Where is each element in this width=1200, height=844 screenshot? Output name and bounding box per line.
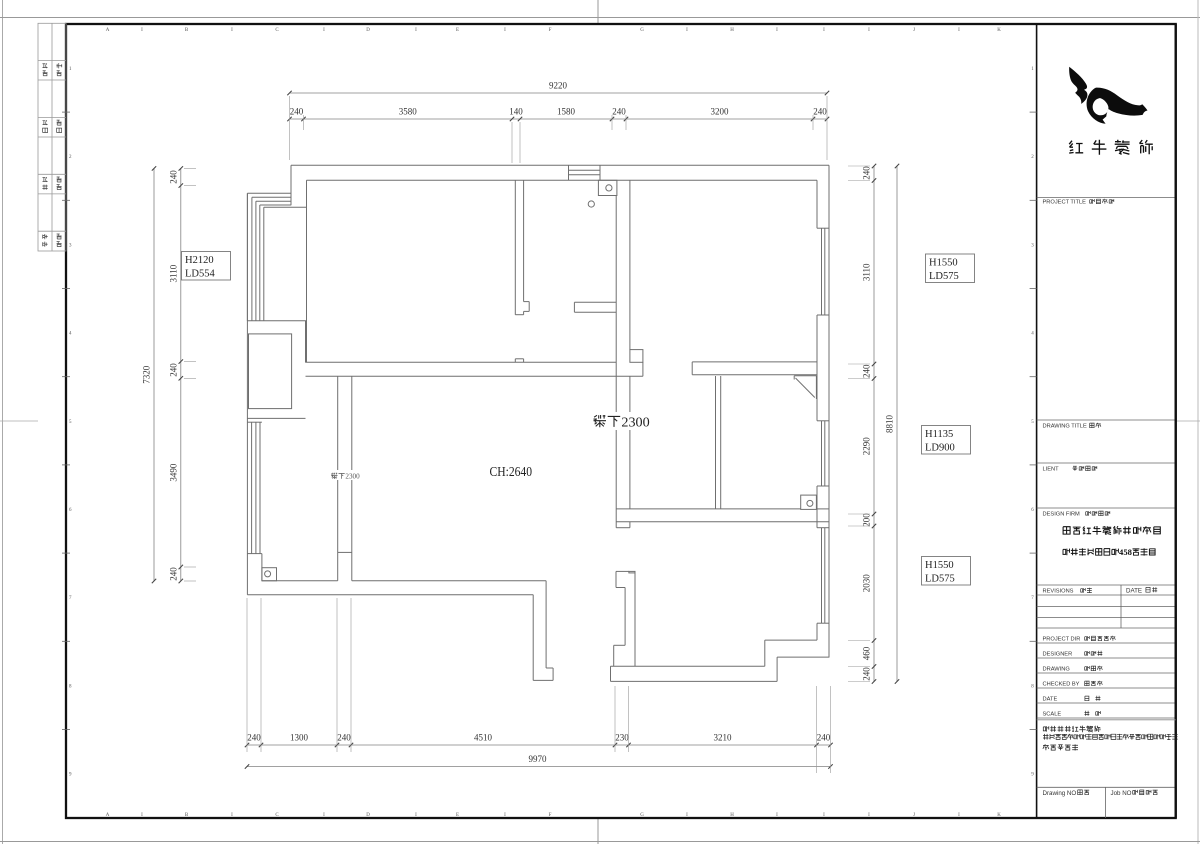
svg-text:F: F	[549, 813, 552, 818]
svg-text:240: 240	[168, 567, 178, 581]
svg-text:G: G	[640, 28, 644, 33]
svg-text:200: 200	[862, 513, 872, 527]
svg-text:J: J	[913, 28, 915, 33]
svg-text:H: H	[730, 813, 734, 818]
svg-text:240: 240	[862, 667, 872, 681]
svg-text:7320: 7320	[142, 365, 152, 384]
svg-text:240: 240	[612, 107, 626, 117]
svg-text:2300: 2300	[621, 414, 649, 430]
svg-text:H1550: H1550	[929, 258, 958, 269]
svg-text:SCALE: SCALE	[1043, 712, 1062, 718]
svg-text:240: 240	[862, 166, 872, 180]
svg-text:140: 140	[509, 107, 523, 117]
svg-text:240: 240	[168, 170, 178, 184]
svg-text:3490: 3490	[168, 463, 178, 482]
svg-text:D: D	[366, 28, 370, 33]
svg-text:H2120: H2120	[185, 255, 214, 266]
svg-text:E: E	[456, 28, 459, 33]
svg-text:DESIGNER: DESIGNER	[1043, 652, 1073, 658]
svg-text:4510: 4510	[474, 733, 493, 743]
svg-text:REVISIONS: REVISIONS	[1043, 589, 1074, 595]
svg-text:240: 240	[813, 107, 827, 117]
svg-text:J: J	[913, 813, 915, 818]
svg-text:PROJECT DIR: PROJECT DIR	[1043, 637, 1081, 643]
svg-text:8810: 8810	[885, 415, 895, 434]
svg-text:Drawing NO: Drawing NO	[1043, 790, 1077, 797]
svg-text:CH:2640: CH:2640	[490, 464, 533, 479]
svg-text:LD575: LD575	[925, 574, 955, 585]
svg-text:D: D	[366, 813, 370, 818]
svg-text:2030: 2030	[862, 574, 872, 593]
svg-text:F: F	[549, 28, 552, 33]
svg-text:K: K	[997, 28, 1001, 33]
svg-text:K: K	[997, 813, 1001, 818]
svg-text:DRAWING TITLE: DRAWING TITLE	[1043, 424, 1087, 430]
svg-text:DRAWING: DRAWING	[1043, 667, 1070, 673]
svg-text:3110: 3110	[168, 264, 178, 282]
svg-text:CHECKED BY: CHECKED BY	[1043, 682, 1080, 688]
svg-text:240: 240	[817, 733, 831, 743]
svg-text:A: A	[106, 28, 110, 33]
svg-text:240: 240	[862, 364, 872, 378]
svg-text:2290: 2290	[862, 437, 872, 456]
svg-text:3580: 3580	[399, 107, 418, 117]
svg-text:H: H	[730, 28, 734, 33]
svg-text:9220: 9220	[549, 81, 568, 91]
svg-text:E: E	[456, 813, 459, 818]
svg-text:240: 240	[337, 733, 351, 743]
svg-text:1580: 1580	[557, 107, 576, 117]
svg-text:3210: 3210	[714, 733, 733, 743]
svg-text:458: 458	[1119, 547, 1133, 557]
svg-text:LD900: LD900	[925, 443, 955, 454]
svg-text:1300: 1300	[290, 733, 309, 743]
svg-text:H1550: H1550	[925, 560, 954, 571]
svg-text:LD575: LD575	[929, 271, 959, 282]
svg-text:230: 230	[615, 733, 629, 743]
svg-text:A: A	[106, 813, 110, 818]
svg-text:240: 240	[168, 363, 178, 377]
svg-text:DATE: DATE	[1043, 697, 1058, 703]
svg-text:LD554: LD554	[185, 269, 215, 280]
svg-text:240: 240	[247, 733, 261, 743]
svg-text:460: 460	[862, 646, 872, 660]
svg-text:240: 240	[290, 107, 304, 117]
svg-text:3200: 3200	[711, 107, 730, 117]
svg-text:G: G	[640, 813, 644, 818]
svg-text:DATE: DATE	[1126, 588, 1142, 595]
svg-text:DESIGN FIRM: DESIGN FIRM	[1043, 512, 1081, 518]
svg-text:LIENT: LIENT	[1043, 467, 1060, 473]
svg-text:9970: 9970	[529, 754, 548, 764]
svg-text:PROJECT TITLE: PROJECT TITLE	[1043, 200, 1087, 206]
svg-text:H1135: H1135	[925, 429, 953, 440]
svg-text:3110: 3110	[862, 263, 872, 281]
svg-text:2300: 2300	[345, 472, 360, 480]
svg-text:Job NO: Job NO	[1111, 790, 1132, 797]
